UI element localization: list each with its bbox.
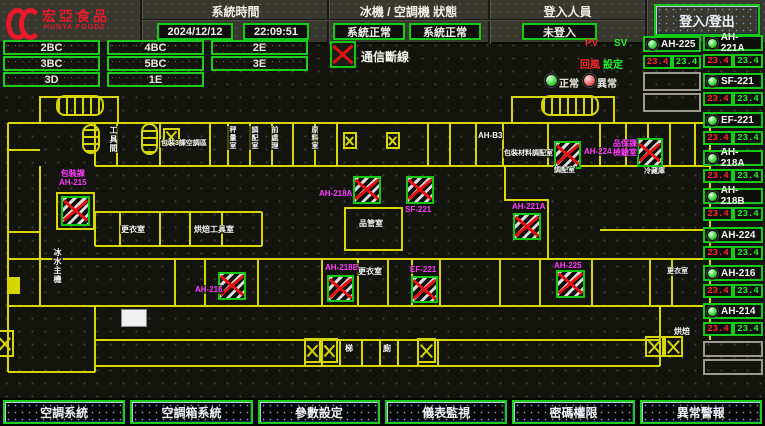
- equipment-name: AH-216: [721, 268, 755, 279]
- pv-value: 23.4: [703, 169, 733, 183]
- empty-slot: [643, 93, 701, 112]
- equipment-values: 23.423.4: [703, 207, 763, 221]
- normal-led-icon: [545, 74, 558, 87]
- sv-value: 23.4: [733, 54, 763, 68]
- sv-value: 23.4: [733, 322, 763, 336]
- status-led-icon: [707, 76, 718, 87]
- shaft-icon: [664, 336, 683, 357]
- room-label: 冷藏庫: [643, 167, 666, 176]
- pv-value: 23.4: [703, 92, 733, 106]
- comm-fail-label: 通信斷線: [361, 48, 409, 65]
- equipment-ah-218a: AH-218A 23.423.4: [703, 150, 763, 183]
- ahu-status-value: 系統正常: [409, 23, 481, 40]
- equipment-name: EF-221: [721, 115, 754, 126]
- equipment-values: 23.423.4: [703, 131, 763, 145]
- equipment-name-button[interactable]: AH-221A: [703, 35, 763, 51]
- room-label: 調配室: [249, 126, 260, 150]
- brand-name-en: HUNYA FOODS: [44, 24, 106, 31]
- equipment-name-button[interactable]: AH-214: [703, 303, 763, 319]
- footer-bar: 空調系統 空調箱系統 參數設定 儀表監視 密碼權限 異常警報: [0, 398, 765, 426]
- equipment-name: AH-218A: [721, 147, 761, 169]
- sv-value: 23.4: [733, 131, 763, 145]
- equipment-name-button[interactable]: SF-221: [703, 73, 763, 89]
- device-label-ah-221a: AH-221A: [511, 202, 546, 211]
- equipment-sf-221: SF-221 23.423.4: [703, 73, 763, 106]
- brand-name: 宏亞食品: [42, 6, 110, 26]
- floor-button-2e[interactable]: 2E: [211, 40, 308, 55]
- room-label: 包裝3課空調區: [160, 139, 208, 148]
- equipment-name: AH-224: [721, 230, 755, 241]
- normal-legend: 正常: [559, 75, 579, 90]
- shaft-icon: [0, 330, 14, 357]
- room-label: 秤量室: [227, 126, 238, 150]
- floor-button-2bc[interactable]: 2BC: [3, 40, 100, 55]
- abnormal-led-icon: [583, 74, 596, 87]
- sv-value: 23.4: [672, 55, 701, 69]
- equipment-ah-214: AH-214 23.423.4: [703, 303, 763, 336]
- pv-value: 23.4: [703, 207, 733, 221]
- equipment-values: 23.423.4: [703, 92, 763, 106]
- room-label: 更衣室: [666, 267, 689, 276]
- equipment-name-button[interactable]: AH-218B: [703, 188, 763, 204]
- equipment-name-button[interactable]: AH-224: [703, 227, 763, 243]
- equipment-values: 23.423.4: [703, 322, 763, 336]
- room-label: 工具間: [108, 126, 119, 153]
- sv-value: 23.4: [733, 284, 763, 298]
- pv-value: 23.4: [703, 284, 733, 298]
- brand-logo-icon: [19, 8, 42, 40]
- shaft-icon: [417, 338, 436, 363]
- equipment-ef-221: EF-221 23.423.4: [703, 112, 763, 145]
- equipment-name-button[interactable]: EF-221: [703, 112, 763, 128]
- pv-value: 23.4: [703, 131, 733, 145]
- room-label: 品管室: [358, 219, 384, 228]
- status-led-icon: [707, 191, 718, 202]
- device-label-ef-221: EF-221: [409, 265, 437, 274]
- ahu-icon-ah-224[interactable]: [554, 141, 581, 169]
- equipment-name: AH-218B: [721, 185, 761, 207]
- room-label: 調配室: [553, 166, 576, 175]
- device-label-lab: 品保課檢驗室: [612, 139, 638, 157]
- hmi-screen: 包裝課AH-215 AH-218A SF-221 AH-224 品保課檢驗室 A…: [0, 0, 765, 426]
- comm-fail-icon: [330, 41, 356, 68]
- pv-value: 23.4: [703, 54, 733, 68]
- nav-button-password-authority[interactable]: 密碼權限: [512, 400, 634, 424]
- login-user-label: 登入人員: [490, 3, 645, 20]
- sv-value: 23.4: [733, 92, 763, 106]
- shaft-icon: [386, 132, 400, 149]
- room-label: 廁: [382, 344, 392, 353]
- device-label-ah-216: AH-216: [194, 285, 224, 294]
- room-label: 梯: [344, 344, 354, 353]
- shaft-icon: [304, 338, 321, 363]
- status-led-icon: [647, 39, 658, 50]
- room-label: 原料室: [309, 126, 320, 150]
- system-date-value: 2024/12/12: [157, 23, 233, 40]
- ahu-icon-ah-221a[interactable]: [513, 213, 541, 240]
- nav-button-ahu-system[interactable]: 空調箱系統: [130, 400, 252, 424]
- status-led-icon: [707, 115, 718, 126]
- device-label-ah-218a: AH-218A: [318, 189, 353, 198]
- empty-slot: [703, 359, 763, 375]
- abnormal-legend: 異常: [597, 75, 617, 90]
- ahu-icon-ah-215[interactable]: [61, 196, 90, 226]
- equipment-ah-224: AH-224 23.423.4: [703, 227, 763, 260]
- room-label: AH-B3: [477, 131, 503, 140]
- equipment-ah-221a: AH-221A 23.423.4: [703, 35, 763, 68]
- floor-button-3d[interactable]: 3D: [3, 72, 100, 87]
- status-led-icon: [707, 38, 718, 49]
- device-label-ah-224: AH-224: [583, 147, 613, 156]
- room-label: 烘焙: [673, 327, 691, 336]
- equipment-values: 23.423.4: [703, 169, 763, 183]
- shaft-icon: [343, 132, 357, 149]
- status-led-icon: [707, 230, 718, 241]
- nav-button-parameter-settings[interactable]: 參數設定: [258, 400, 380, 424]
- device-label-ah-218b: AH-218B: [324, 263, 359, 272]
- stair-icon: [82, 124, 100, 154]
- room-label: 烘焙工具室: [193, 225, 235, 234]
- stair-icon: [141, 123, 158, 155]
- ahu-icon-sf-221[interactable]: [406, 176, 434, 204]
- sv-value: 23.4: [733, 169, 763, 183]
- device-label-sf-221: SF-221: [404, 205, 432, 214]
- equipment-values: 23.4 23.4: [643, 55, 701, 69]
- status-led-icon: [707, 268, 718, 279]
- chiller-ahu-status-label: 冰機 / 空調機 狀態: [329, 3, 488, 20]
- ahu-icon-lab[interactable]: [637, 138, 663, 167]
- room-label: 更衣室: [120, 225, 146, 234]
- equipment-ah-216: AH-216 23.423.4: [703, 265, 763, 298]
- equipment-ah-225: AH-225 23.4 23.4: [643, 36, 701, 69]
- equipment-name: AH-214: [721, 306, 755, 317]
- status-led-icon: [707, 306, 718, 317]
- device-label-ah-225: AH-225: [553, 261, 583, 270]
- pv-value: 23.4: [703, 246, 733, 260]
- sv-value: 23.4: [733, 246, 763, 260]
- ahu-icon-ah-218a[interactable]: [353, 176, 381, 204]
- equipment-name: SF-221: [721, 76, 754, 87]
- equipment-name: AH-221A: [721, 32, 761, 54]
- nav-button-alarm[interactable]: 異常警報: [640, 400, 762, 424]
- system-time-label: 系統時間: [142, 3, 329, 20]
- ahu-icon-ah-225[interactable]: [556, 270, 585, 298]
- elevator-box: [121, 309, 147, 327]
- equipment-values: 23.423.4: [703, 54, 763, 68]
- shaft-icon: [645, 336, 664, 357]
- floor-button-4bc[interactable]: 4BC: [107, 40, 204, 55]
- shaft-icon: [321, 338, 338, 363]
- empty-slot: [703, 341, 763, 357]
- room-label: 更衣室: [357, 267, 383, 276]
- ahu-icon-ah-218b[interactable]: [327, 275, 354, 302]
- equipment-values: 23.423.4: [703, 246, 763, 260]
- status-led-icon: [707, 153, 718, 164]
- equipment-name-button[interactable]: AH-225: [643, 36, 701, 52]
- floor-button-3e[interactable]: 3E: [211, 56, 308, 71]
- equipment-name-button[interactable]: AH-218A: [703, 150, 763, 166]
- system-time-value: 22:09:51: [243, 23, 309, 40]
- sv-legend: SV: [614, 38, 627, 49]
- room-label: 前處理: [269, 126, 280, 150]
- device-label-ah-215: 包裝課AH-215: [58, 169, 88, 187]
- ahu-icon-ef-221[interactable]: [411, 276, 438, 303]
- equipment-values: 23.423.4: [703, 284, 763, 298]
- pv-legend: PV: [585, 38, 598, 49]
- stair-icon: [56, 95, 104, 116]
- equipment-ah-218b: AH-218B 23.423.4: [703, 188, 763, 221]
- floor-button-5bc[interactable]: 5BC: [107, 56, 204, 71]
- floor-button-3bc[interactable]: 3BC: [3, 56, 100, 71]
- empty-slot: [643, 72, 701, 91]
- pv-value: 23.4: [643, 55, 672, 69]
- return-air-legend: 回風: [580, 56, 600, 71]
- room-label: 包裝材料調配室: [503, 149, 554, 158]
- room-label: 冰水主機: [52, 248, 63, 284]
- floor-button-1e[interactable]: 1E: [107, 72, 204, 87]
- equipment-name: AH-225: [661, 39, 695, 50]
- nav-button-ac-system[interactable]: 空調系統: [3, 400, 125, 424]
- sv-value: 23.4: [733, 207, 763, 221]
- pv-value: 23.4: [703, 322, 733, 336]
- setpoint-legend: 設定: [603, 56, 623, 71]
- nav-button-meter-monitor[interactable]: 儀表監視: [385, 400, 507, 424]
- equipment-name-button[interactable]: AH-216: [703, 265, 763, 281]
- stair-icon: [541, 95, 599, 116]
- chiller-status-value: 系統正常: [333, 23, 405, 40]
